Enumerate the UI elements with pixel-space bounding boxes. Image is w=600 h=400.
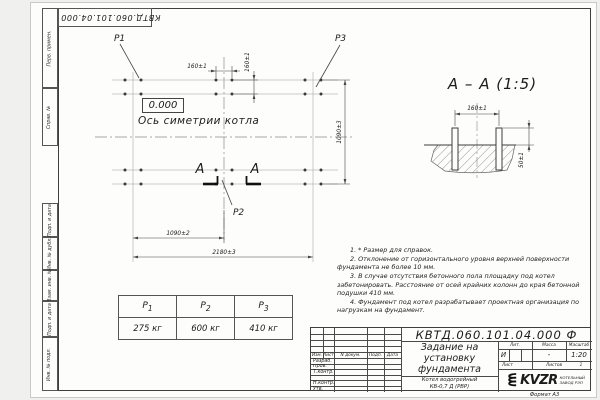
brand-subtitle: КОТЕЛЬНЫЙ ЗАВОД РЭП bbox=[560, 376, 585, 385]
note-3: 3. В случае отсутствия бетонного пола пл… bbox=[337, 272, 589, 298]
section-bolt-left bbox=[452, 128, 458, 170]
dim-2180: 2180±3 bbox=[212, 250, 236, 256]
section-title: A – A (1:5) bbox=[425, 75, 560, 93]
dim-160-vertical: 160±1 bbox=[245, 52, 251, 72]
load-p2-header: P2 bbox=[177, 296, 235, 318]
row-utv: Утв. bbox=[311, 386, 336, 392]
note-1: 1. * Размер для справок. bbox=[337, 246, 589, 255]
title-block: Изм. Лист N докум. Подп. Дата Разраб. Пр… bbox=[310, 327, 591, 391]
sheet-label: Лист bbox=[498, 361, 536, 369]
brand-name: KVZR bbox=[520, 373, 558, 388]
section-letter-right: A bbox=[250, 162, 260, 177]
row-tkontr: Т.контр. bbox=[311, 369, 336, 375]
section-dim-50: 50±1 bbox=[519, 152, 525, 168]
anchor-bolt-points bbox=[124, 79, 323, 186]
leader-p1 bbox=[120, 44, 139, 78]
note-2: 2. Отклонение от горизонтального уровня … bbox=[337, 255, 589, 272]
sheets-value: 1 bbox=[574, 361, 588, 369]
plan-p1-label: P1 bbox=[114, 34, 125, 44]
scale-label: Масштаб bbox=[566, 341, 592, 349]
lit-label: Лит. bbox=[498, 341, 532, 349]
mass-label: Масса bbox=[532, 341, 566, 349]
kvzr-spring-logo-icon bbox=[505, 372, 518, 389]
load-p1-value: 275 кг bbox=[119, 318, 177, 340]
company-logo: KVZR КОТЕЛЬНЫЙ ЗАВОД РЭП bbox=[498, 369, 592, 392]
section-bolt-right bbox=[496, 128, 502, 170]
load-p2-value: 600 кг bbox=[177, 318, 235, 340]
load-table: P1 P2 P3 275 кг 600 кг 410 кг bbox=[118, 295, 293, 340]
section-dim-160: 160±1 bbox=[467, 106, 487, 112]
note-4: 4. Фундамент под котел разрабатывает про… bbox=[337, 298, 589, 315]
sheets-label: Листов bbox=[532, 361, 576, 369]
product-name: Котел водогрейный КВ-0,7 Д (РВР) bbox=[401, 376, 498, 392]
level-mark-box: 0.000 bbox=[142, 98, 184, 113]
level-mark: 0.000 bbox=[149, 100, 178, 111]
dim-160-horizontal: 160±1 bbox=[187, 64, 207, 70]
boiler-axis-label: Ось симетрии котла bbox=[138, 115, 288, 127]
title-block-designation: КВТД.060.101.04.000 Ф bbox=[401, 328, 592, 341]
document-title: Задание на установку фундамента bbox=[406, 341, 493, 376]
load-p3-header: P3 bbox=[235, 296, 293, 318]
dim-1090-vertical: 1090±3 bbox=[337, 120, 343, 144]
load-table-header-row: P1 P2 P3 bbox=[119, 296, 293, 318]
notes-block: 1. * Размер для справок. 2. Отклонение о… bbox=[337, 246, 589, 315]
col-data: Дата bbox=[384, 352, 401, 358]
load-p1-header: P1 bbox=[119, 296, 177, 318]
col-ndocum: N докум. bbox=[334, 352, 367, 358]
load-p3-value: 410 кг bbox=[235, 318, 293, 340]
plan-p3-label: P3 bbox=[335, 34, 346, 44]
scale-value: 1:20 bbox=[566, 349, 592, 361]
load-table-value-row: 275 кг 600 кг 410 кг bbox=[119, 318, 293, 340]
leader-p3 bbox=[316, 45, 340, 87]
col-podp: Подп. bbox=[367, 352, 384, 358]
format-label: Формат А3 bbox=[498, 392, 591, 398]
lit-value: И bbox=[498, 349, 509, 361]
dim-1090-horizontal: 1090±2 bbox=[166, 231, 190, 237]
section-letter-left: A bbox=[195, 162, 205, 177]
mass-value: - bbox=[532, 349, 566, 361]
plan-p2-label: P2 bbox=[233, 208, 244, 218]
